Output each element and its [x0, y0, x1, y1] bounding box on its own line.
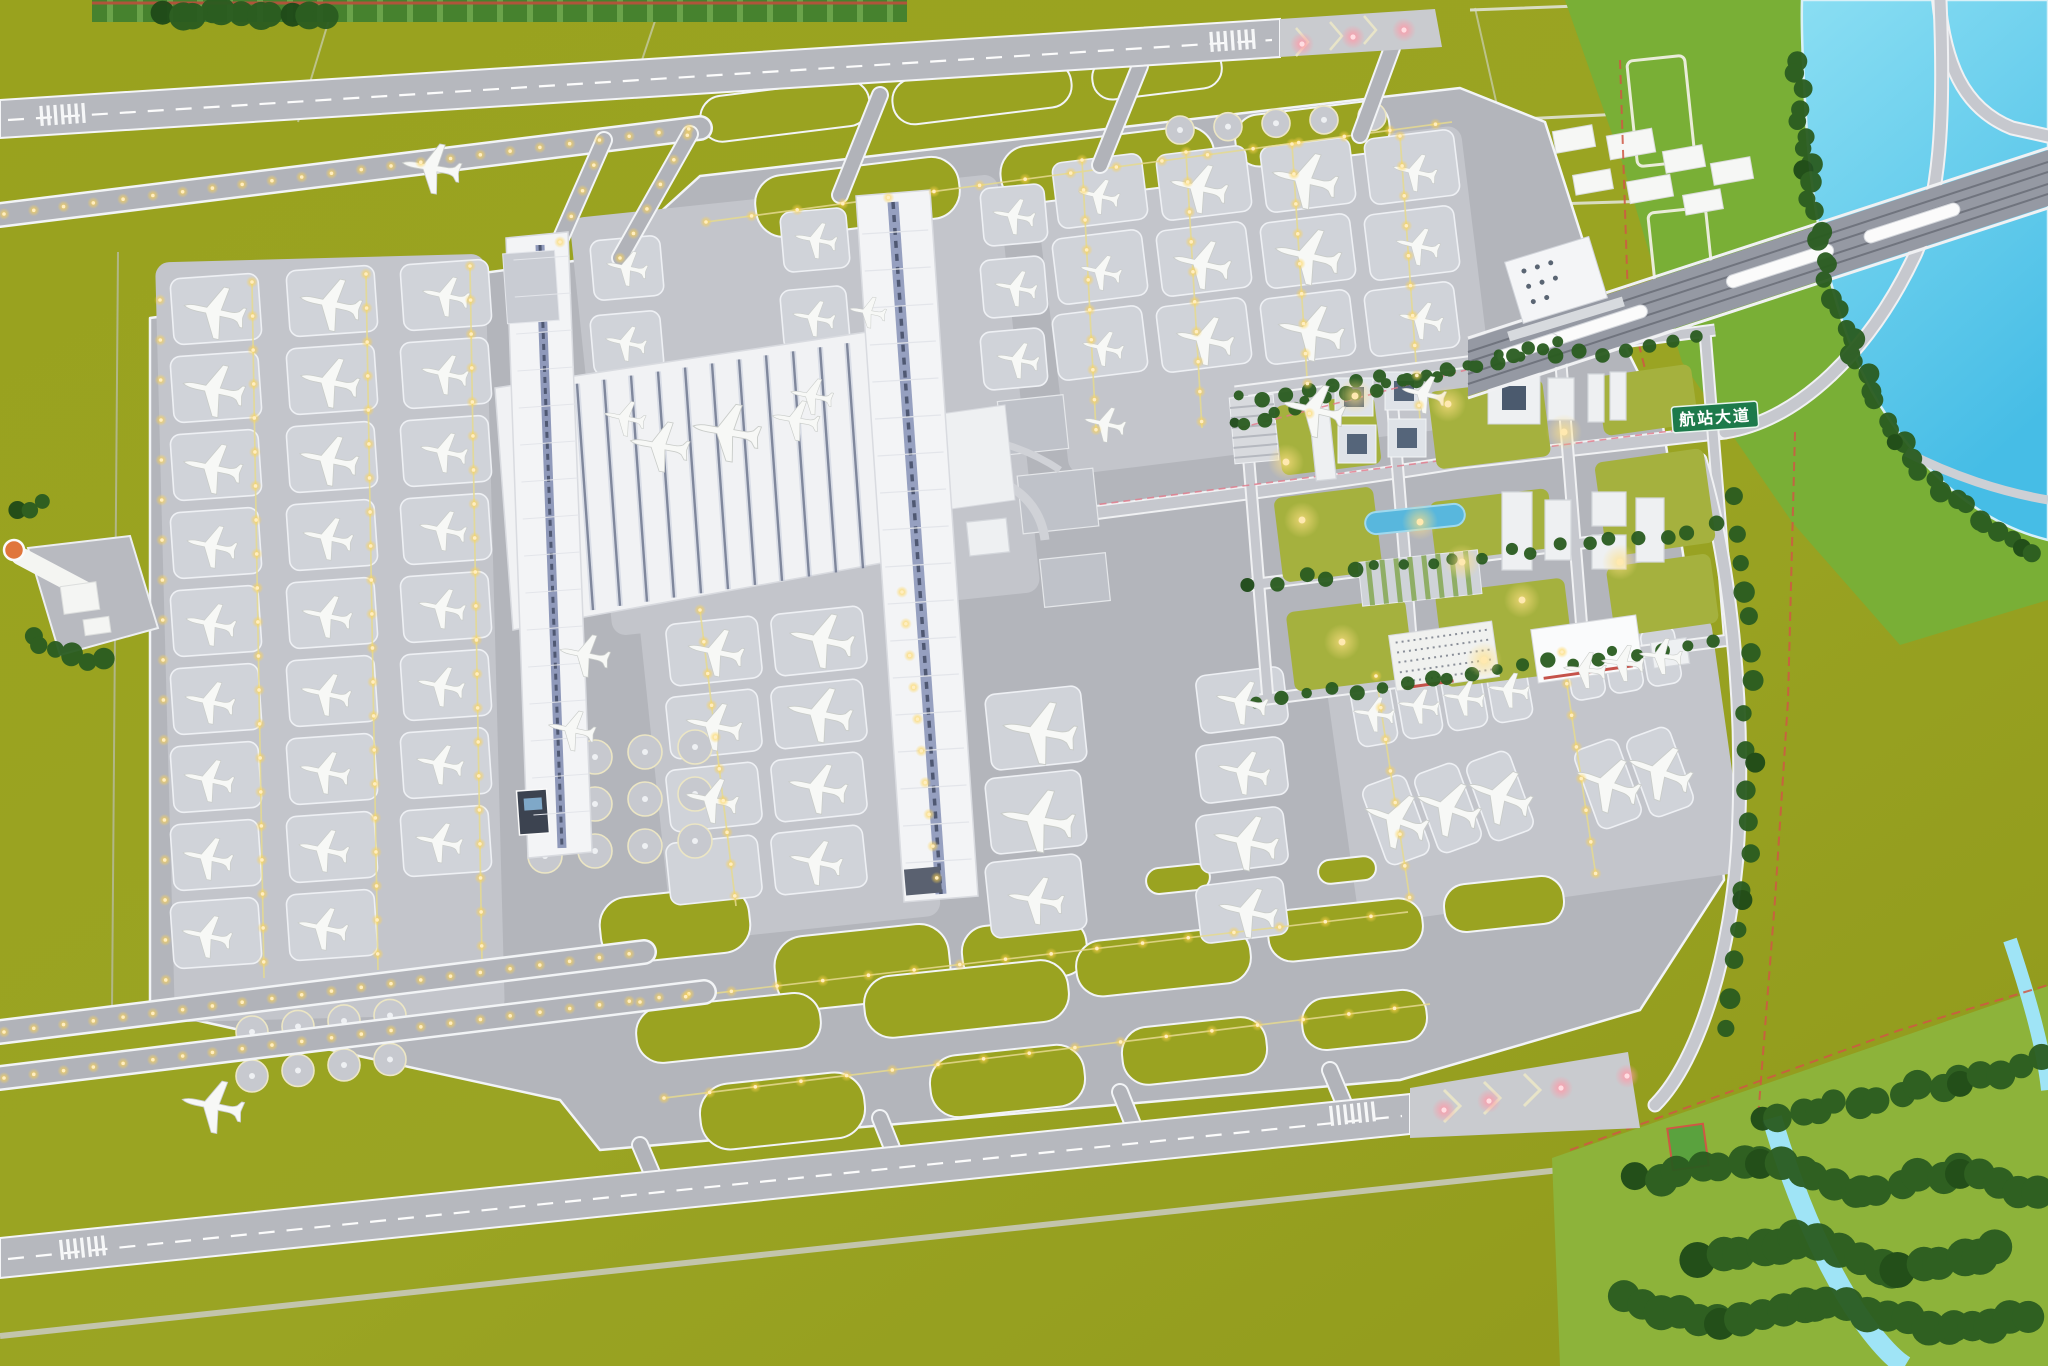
pad-center: [249, 1073, 255, 1079]
tree: [1643, 339, 1657, 353]
tree: [1631, 531, 1645, 545]
taxiway-light-core: [1195, 330, 1199, 334]
taxiway-light-core: [258, 756, 262, 760]
taxiway-light-core: [469, 332, 473, 336]
taxiway-light-core: [1408, 896, 1412, 900]
landside-light-core: [1561, 429, 1568, 436]
taxiway-light-core: [370, 612, 374, 616]
tree: [1807, 229, 1829, 251]
tree: [1763, 1104, 1792, 1133]
tree: [93, 648, 115, 670]
taxiway-light-core: [254, 518, 258, 522]
taxiway-light-core: [1300, 292, 1304, 296]
taxiway-light-core: [389, 982, 393, 986]
landside-light-core: [1417, 519, 1424, 526]
taxiway-light-core: [923, 781, 927, 785]
taxiway-light-core: [478, 842, 482, 846]
landside-light-core: [1445, 401, 1452, 408]
taxiway-light-core: [1232, 931, 1236, 935]
runway-end-light-core: [1401, 27, 1406, 32]
taxiway-light-core: [1374, 674, 1378, 678]
tree: [1494, 349, 1504, 359]
pad-center: [387, 1056, 393, 1062]
taxiway-light-core: [368, 510, 372, 514]
taxiway-light-core: [471, 434, 475, 438]
taxiway-light-core: [1393, 801, 1397, 805]
tree: [1819, 255, 1837, 273]
taxiway-light-core: [372, 714, 376, 718]
taxiway-light-core: [1304, 352, 1308, 356]
taxiway-light-core: [581, 189, 585, 193]
taxiway-light-core: [1189, 240, 1193, 244]
taxiway-light-core: [480, 944, 484, 948]
taxiway-light-core: [151, 1058, 155, 1062]
tree: [1548, 348, 1564, 364]
taxiway-light-core: [261, 892, 265, 896]
taxiway-light-core: [257, 654, 261, 658]
taxiway-light-core: [1297, 141, 1301, 145]
taxiway-light-core: [1251, 147, 1255, 151]
service-block: [83, 616, 111, 635]
taxiway-light-core: [164, 978, 168, 982]
taxiway-light-core: [704, 220, 708, 224]
taxiway-light-core: [638, 1000, 642, 1004]
tree: [1887, 434, 1903, 450]
taxiway-light-core: [1560, 650, 1564, 654]
taxiway-light-core: [1091, 368, 1095, 372]
tower-cab: [4, 540, 24, 560]
taxiway-light-core: [568, 142, 572, 146]
taxiway-light-core: [251, 348, 255, 352]
taxiway-light-core: [240, 1047, 244, 1051]
tree: [1858, 363, 1879, 384]
taxiway-light-core: [908, 654, 912, 658]
tree: [30, 637, 47, 654]
tree: [1707, 635, 1720, 648]
taxiway-light-core: [662, 1096, 666, 1100]
tree: [35, 494, 50, 509]
landside-light-core: [1352, 393, 1359, 400]
tower-base-building: [60, 582, 100, 615]
taxiway-light-core: [469, 298, 473, 302]
taxiway-light-core: [1004, 957, 1008, 961]
tree: [1863, 1087, 1890, 1114]
tree: [1601, 532, 1615, 546]
taxiway-light-core: [672, 158, 676, 162]
taxiway-light-core: [159, 338, 163, 342]
taxiway-light-core: [365, 340, 369, 344]
taxiway-light-core: [473, 536, 477, 540]
runway-end-light-core: [1350, 34, 1355, 39]
taxiway-light-core: [598, 138, 602, 142]
taxiway-light-core: [163, 898, 167, 902]
taxiway-light-core: [260, 858, 264, 862]
tree: [1741, 643, 1760, 662]
taxiway-light-core: [371, 646, 375, 650]
taxiway-light-core: [710, 703, 714, 707]
pad-center: [1225, 124, 1231, 130]
tree: [1661, 530, 1676, 545]
taxiway-light-core: [1389, 769, 1393, 773]
taxiway-light-core: [657, 131, 661, 135]
pad-center: [642, 843, 648, 849]
taxiway-light-core: [419, 978, 423, 982]
taxiway-light-core: [1308, 412, 1312, 416]
taxiway-light-core: [1093, 398, 1097, 402]
taxiway-light-core: [473, 570, 477, 574]
taxiway-light-core: [725, 831, 729, 835]
tree: [1554, 537, 1567, 550]
taxiway-light-core: [270, 1043, 274, 1047]
taxiway-light-core: [270, 179, 274, 183]
taxiway-light-core: [1198, 390, 1202, 394]
tree: [1800, 171, 1822, 193]
tree: [1377, 682, 1388, 693]
taxiway-light-core: [1393, 1007, 1397, 1011]
taxiway-light-core: [477, 774, 481, 778]
tree: [1471, 360, 1484, 373]
pad-center: [592, 801, 598, 807]
taxiway-light-core: [1379, 706, 1383, 710]
aircraft-stand: [170, 819, 262, 891]
taxiway-light-core: [163, 818, 167, 822]
taxiway-light-core: [389, 1029, 393, 1033]
taxiway-light-core: [1083, 218, 1087, 222]
taxiway-light-core: [240, 1000, 244, 1004]
taxiway-light-core: [1090, 338, 1094, 342]
taxiway-light-core: [698, 608, 702, 612]
pad-center: [341, 1062, 347, 1068]
tree: [1326, 682, 1339, 695]
tree: [1977, 1229, 2012, 1264]
aircraft-stand: [170, 897, 262, 969]
taxiway-light-core: [1115, 165, 1119, 169]
taxiway-light-core: [255, 552, 259, 556]
taxiway-light-core: [569, 215, 573, 219]
taxiway-light-core: [927, 813, 931, 817]
taxiway-light-core: [330, 989, 334, 993]
taxiway-light-core: [867, 973, 871, 977]
taxiway-light-core: [890, 1068, 894, 1072]
taxiway-light-core: [718, 767, 722, 771]
taxiway-light-core: [369, 544, 373, 548]
taxiway-light-core: [258, 722, 262, 726]
landside-light-core: [1519, 597, 1526, 604]
taxiway-light-core: [162, 738, 166, 742]
taxiway-light-core: [1256, 1023, 1260, 1027]
tree: [1552, 336, 1563, 347]
tree: [1794, 79, 1813, 98]
taxiway-light-core: [1594, 872, 1598, 876]
taxiway-light-core: [1073, 1046, 1077, 1050]
taxiway-light-core: [62, 205, 66, 209]
taxiway-light-core: [1196, 360, 1200, 364]
taxiway-light-core: [1302, 322, 1306, 326]
taxiway-light-core: [367, 408, 371, 412]
tree: [1595, 348, 1610, 363]
taxiway-light-core: [121, 1015, 125, 1019]
taxiway-light-core: [978, 184, 982, 188]
taxiway-light-core: [1388, 129, 1392, 133]
taxiway-light-core: [684, 995, 688, 999]
tree: [1805, 202, 1824, 221]
taxiway-light-core: [162, 778, 166, 782]
taxiway-light-core: [371, 680, 375, 684]
taxiway-light-core: [470, 366, 474, 370]
taxiway-light-core: [471, 400, 475, 404]
taxiway-light-core: [1570, 713, 1574, 717]
tree: [1591, 653, 1605, 667]
taxiway-light-core: [62, 1023, 66, 1027]
taxiway-light-core: [211, 1051, 215, 1055]
tree: [1740, 607, 1758, 625]
tree: [1401, 676, 1415, 690]
taxiway-light-core: [1188, 210, 1192, 214]
tree: [1521, 341, 1534, 354]
tree: [1816, 271, 1832, 287]
taxiway-light-core: [240, 183, 244, 187]
tree: [1736, 781, 1755, 800]
taxiway-light-core: [1324, 920, 1328, 924]
taxiway-light-core: [260, 824, 264, 828]
taxiway-light-core: [373, 782, 377, 786]
taxiway-light-core: [627, 952, 631, 956]
taxiway-light-core: [1278, 925, 1282, 929]
taxiway-light-core: [1342, 135, 1346, 139]
tree: [1730, 922, 1746, 938]
taxiway-light-core: [1347, 1012, 1351, 1016]
taxiway-light-core: [775, 984, 779, 988]
tree: [1690, 330, 1703, 343]
runway-end-light-core: [1441, 1107, 1446, 1112]
pad-center: [592, 848, 598, 854]
taxiway-light-core: [1417, 404, 1421, 408]
taxiway-light-core: [359, 168, 363, 172]
taxiway-light-core: [365, 306, 369, 310]
aircraft-stand: [286, 889, 378, 961]
taxiway-light-core: [1298, 262, 1302, 266]
pad-center: [1321, 117, 1327, 123]
taxiway-light-core: [300, 1040, 304, 1044]
taxiway-light-core: [375, 918, 379, 922]
taxiway-light-core: [1080, 158, 1084, 162]
taxiway-light-core: [261, 926, 265, 930]
taxiway-light-core: [158, 298, 162, 302]
tree: [1274, 691, 1288, 705]
taxiway-light-core: [476, 706, 480, 710]
taxiway-light-core: [795, 208, 799, 212]
taxiway-light-core: [627, 135, 631, 139]
tree: [1733, 581, 1754, 602]
pad-center: [642, 796, 648, 802]
taxiway-light-core: [330, 172, 334, 176]
tree: [1717, 1020, 1734, 1037]
taxiway-light-core: [479, 153, 483, 157]
taxiway-light-core: [920, 749, 924, 753]
taxiway-light-core: [1565, 682, 1569, 686]
landside-light-core: [1617, 559, 1624, 566]
aircraft-stand: [170, 741, 262, 813]
taxiway-light-core: [1027, 1051, 1031, 1055]
tree: [1661, 1156, 1692, 1187]
tree: [1381, 378, 1391, 388]
taxiway-light-core: [262, 960, 266, 964]
tree: [1300, 567, 1315, 582]
taxiway-light-core: [592, 163, 596, 167]
taxiway-light-core: [478, 808, 482, 812]
tree: [1908, 462, 1927, 481]
airport-model-photo: 航站大道: [0, 0, 2048, 1366]
taxiway-light-core: [475, 638, 479, 642]
taxiway-light-core: [181, 1008, 185, 1012]
taxiway-light-core: [160, 458, 164, 462]
taxiway-light-core: [887, 196, 891, 200]
tree: [1441, 673, 1453, 685]
landside-light-core: [1481, 657, 1488, 664]
tree: [1720, 988, 1741, 1009]
taxiway-light-core: [916, 717, 920, 721]
taxiway-light-core: [181, 1054, 185, 1058]
tree: [1725, 950, 1744, 969]
taxiway-light-core: [821, 979, 825, 983]
taxiway-light-core: [468, 264, 472, 268]
taxiway-light-core: [1141, 941, 1145, 945]
taxiway-light-core: [211, 186, 215, 190]
taxiway-light-core: [659, 183, 663, 187]
tree: [1301, 688, 1312, 699]
taxiway-light-core: [912, 968, 916, 972]
taxiway-light-core: [729, 862, 733, 866]
taxiway-light-core: [1296, 232, 1300, 236]
tree: [1318, 572, 1333, 587]
tree: [1607, 646, 1617, 656]
taxiway-light-core: [1415, 374, 1419, 378]
tree: [1619, 344, 1633, 358]
taxiway-light-core: [1584, 808, 1588, 812]
taxiway-light-core: [251, 314, 255, 318]
runway-end-light-core: [1486, 1098, 1491, 1103]
taxiway-light-core: [366, 374, 370, 378]
scene-svg: 航站大道: [0, 0, 2048, 1366]
pad-center: [592, 754, 598, 760]
taxiway-light-core: [300, 993, 304, 997]
taxiway-light-core: [1119, 1040, 1123, 1044]
taxiway-light-core: [1049, 952, 1053, 956]
taxiway-light-core: [164, 938, 168, 942]
taxiway-light-core: [1369, 915, 1373, 919]
tree: [1348, 562, 1364, 578]
taxiway-light-core: [508, 1014, 512, 1018]
tree: [1506, 543, 1518, 555]
landside-light-core: [1459, 559, 1466, 566]
taxiway-light-core: [162, 698, 166, 702]
taxiway-light-core: [1085, 248, 1089, 252]
taxiway-light-core: [1403, 864, 1407, 868]
taxiway-light-core: [1186, 936, 1190, 940]
taxiway-light-core: [163, 858, 167, 862]
taxiway-light-core: [32, 209, 36, 213]
taxiway-light-core: [478, 971, 482, 975]
taxiway-light-core: [645, 207, 649, 211]
taxiway-light-core: [449, 974, 453, 978]
taxiway-light-core: [32, 1073, 36, 1077]
taxiway-light-core: [845, 1074, 849, 1078]
taxiway-light-core: [375, 884, 379, 888]
taxiway-light-core: [159, 378, 163, 382]
landside-light-core: [1299, 517, 1306, 524]
taxiway-light-core: [181, 190, 185, 194]
tree: [1902, 1070, 1932, 1100]
taxiway-light-core: [92, 1019, 96, 1023]
taxiway-light-core: [702, 640, 706, 644]
taxiway-light-core: [1589, 840, 1593, 844]
taxiway-light-core: [558, 240, 562, 244]
tree: [1350, 685, 1365, 700]
taxiway-light-core: [900, 590, 904, 594]
taxiway-light-core: [568, 1007, 572, 1011]
tree: [1930, 481, 1951, 502]
tree: [2023, 544, 2041, 562]
taxiway-light-core: [508, 967, 512, 971]
taxiway-light-core: [1184, 150, 1188, 154]
taxiway-light-core: [1413, 344, 1417, 348]
taxiway-light-core: [32, 1026, 36, 1030]
taxiway-light-core: [1384, 737, 1388, 741]
taxiway-light-core: [300, 175, 304, 179]
taxiway-light-core: [1398, 134, 1402, 138]
taxiway-light-core: [1186, 180, 1190, 184]
taxiway-light-core: [259, 790, 263, 794]
taxiway-light-core: [799, 1079, 803, 1083]
taxiway-light-core: [841, 202, 845, 206]
taxiway-light-core: [1086, 278, 1090, 282]
pad-center: [1273, 120, 1279, 126]
taxiway-light-core: [936, 1063, 940, 1067]
taxiway-light-core: [161, 658, 165, 662]
taxiway-light-core: [474, 604, 478, 608]
taxiway-light-core: [1402, 194, 1406, 198]
taxiway-light-core: [598, 1003, 602, 1007]
tree: [1369, 560, 1379, 570]
taxiway-light-core: [538, 146, 542, 150]
taxiway-light-core: [160, 498, 164, 502]
pad-center: [692, 838, 698, 844]
tree: [1428, 558, 1439, 569]
tree: [1621, 1162, 1649, 1190]
tree: [1745, 753, 1765, 773]
tree: [1709, 516, 1724, 531]
taxiway-light-core: [475, 672, 479, 676]
taxiway-light-core: [256, 620, 260, 624]
taxiway-light-core: [449, 1021, 453, 1025]
taxiway-light-core: [721, 799, 725, 803]
taxiway-light-core: [364, 272, 368, 276]
taxiway-light-core: [372, 748, 376, 752]
taxiway-light-core: [1294, 202, 1298, 206]
taxiway-light-core: [1193, 300, 1197, 304]
tree: [1254, 392, 1270, 408]
taxiway-light-core: [1160, 159, 1164, 163]
media-screen: [517, 789, 550, 835]
taxiway-light-core: [479, 876, 483, 880]
taxiway-light-core: [714, 735, 718, 739]
tree: [1506, 348, 1521, 363]
taxiway-light-core: [359, 986, 363, 990]
taxiway-light-core: [750, 214, 754, 218]
taxiway-light-core: [257, 688, 261, 692]
taxiway-light-core: [935, 876, 939, 880]
taxiway-light-core: [419, 160, 423, 164]
